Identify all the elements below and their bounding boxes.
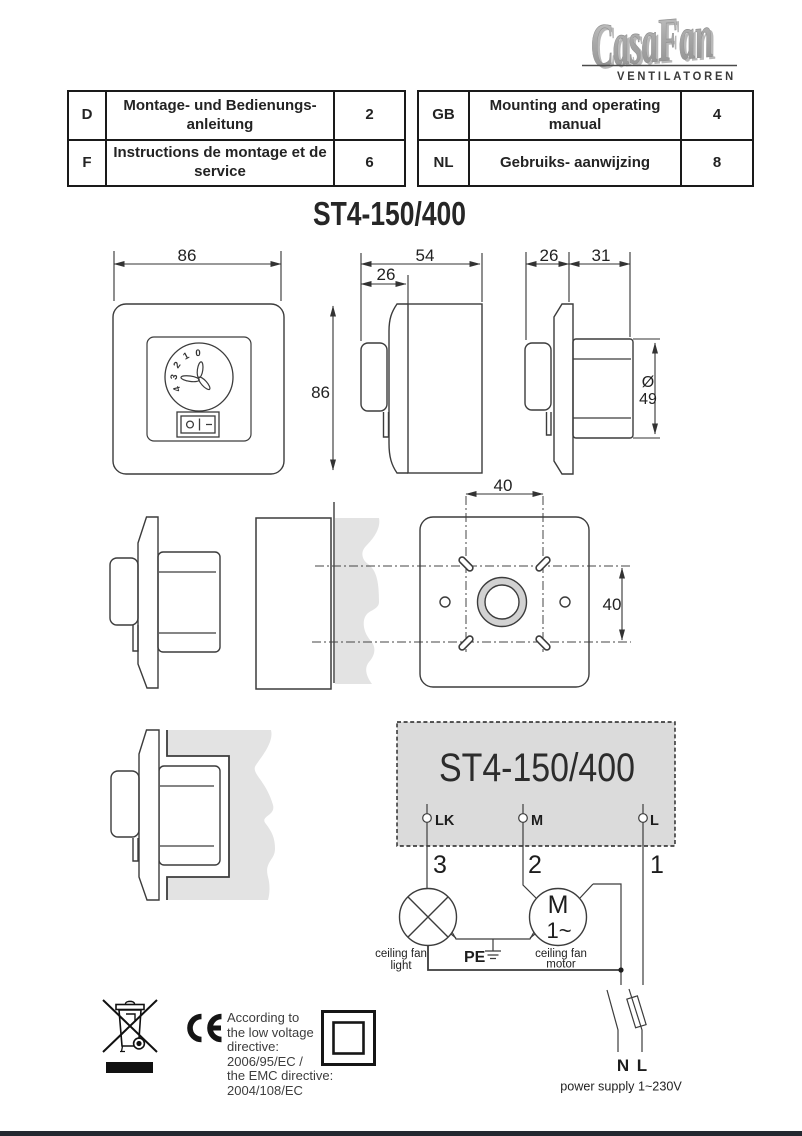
svg-text:3: 3 [169,374,181,381]
svg-text:40: 40 [603,595,622,614]
svg-text:N: N [617,1056,629,1075]
svg-text:ST4-150/400: ST4-150/400 [439,746,635,790]
svg-text:26: 26 [540,246,559,265]
svg-text:86: 86 [178,246,197,265]
svg-text:PE: PE [464,949,486,966]
svg-text:2: 2 [528,851,542,879]
svg-text:ceiling fan: ceiling fan [375,948,427,960]
svg-text:power supply 1~230V: power supply 1~230V [560,1080,682,1094]
svg-text:49: 49 [639,391,657,408]
svg-text:54: 54 [416,246,435,265]
svg-text:26: 26 [377,265,396,284]
svg-text:L: L [650,813,659,829]
svg-text:3: 3 [433,851,447,879]
svg-text:40: 40 [494,476,513,495]
svg-text:31: 31 [592,246,611,265]
svg-text:motor: motor [546,959,576,971]
svg-text:M: M [548,891,569,919]
svg-text:M: M [531,813,543,829]
svg-text:1: 1 [181,350,191,363]
svg-text:light: light [390,960,412,972]
svg-text:2: 2 [171,360,183,371]
svg-text:86: 86 [311,383,330,402]
svg-text:4: 4 [171,384,183,392]
svg-text:1~: 1~ [546,918,571,943]
svg-text:Ø: Ø [642,374,654,391]
svg-text:0: 0 [195,348,201,359]
svg-text:L: L [637,1056,647,1075]
svg-text:1: 1 [650,851,664,879]
svg-text:LK: LK [435,813,455,829]
